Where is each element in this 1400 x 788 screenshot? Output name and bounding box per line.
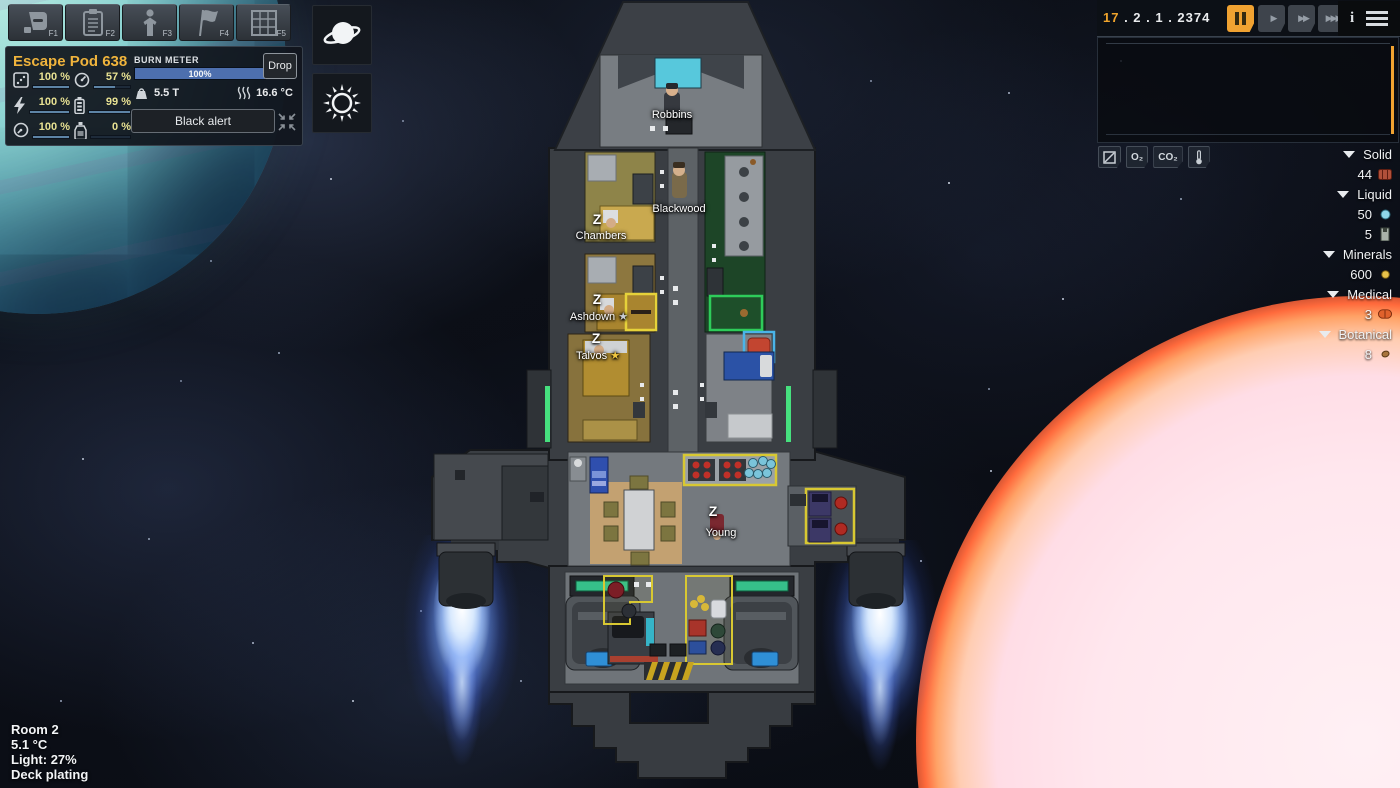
- resource-value: 50: [1358, 207, 1372, 222]
- resource-value: 44: [1358, 167, 1372, 182]
- toolbar-button-f5[interactable]: F5: [236, 4, 291, 41]
- toolbar-button-f1[interactable]: F1: [8, 4, 63, 41]
- medical-icon: [1378, 307, 1392, 321]
- canister-icon: [1378, 227, 1392, 241]
- pod-weight-temp: 5.5 T 16.6 °C: [134, 86, 293, 100]
- resource-count[interactable]: 3: [1365, 304, 1396, 324]
- room-info-line: 5.1 °C: [11, 737, 88, 752]
- collapse-panel-icon[interactable]: [278, 113, 296, 131]
- rank-star-icon: ★: [610, 350, 620, 362]
- menu-icon[interactable]: [1366, 11, 1388, 26]
- crew-label-talvos[interactable]: Talvos ★: [576, 349, 620, 362]
- stat-bar: [93, 85, 131, 89]
- crew-name: Chambers: [576, 230, 627, 242]
- resource-count[interactable]: 44: [1358, 164, 1396, 184]
- pod-stat: 99 %: [74, 97, 131, 117]
- view-buttons: [312, 5, 372, 133]
- toolbar-button-f3[interactable]: F3: [122, 4, 177, 41]
- crew-label-chambers[interactable]: Chambers: [576, 230, 627, 242]
- crew-name: Ashdown: [570, 311, 615, 323]
- airlock-light-right: [786, 386, 791, 442]
- resource-group-botanical[interactable]: Botanical: [1319, 324, 1396, 344]
- hotkey-label: F2: [106, 29, 115, 38]
- pod-stat: 0 %: [74, 122, 131, 142]
- main-toolbar: F1F2F3F4F5: [8, 4, 291, 41]
- hotkey-label: F5: [277, 29, 286, 38]
- stat-value: 0 %: [90, 122, 131, 133]
- room-info-line: Deck plating: [11, 767, 88, 782]
- pod-stat: 57 %: [74, 72, 131, 92]
- burn-meter-value: 100%: [135, 68, 265, 79]
- stat-bar: [90, 135, 131, 139]
- time-panel: 17 . 2 . 1 . 2374 ▶ ▶▶ ▶▶▶ i: [1097, 0, 1400, 37]
- resource-group-minerals[interactable]: Minerals: [1323, 244, 1396, 264]
- blueprint-icon: [251, 10, 277, 36]
- log-scrollbar[interactable]: [1391, 46, 1394, 134]
- overlay-toggles: O₂CO₂: [1098, 146, 1210, 168]
- room-info-readout: Room 25.1 °CLight: 27%Deck plating: [11, 722, 88, 782]
- resource-count[interactable]: 8: [1365, 344, 1396, 364]
- room-cockpit[interactable]: [600, 55, 762, 147]
- stat-value: 57 %: [93, 72, 131, 83]
- crew-label-blackwood[interactable]: Blackwood: [652, 203, 705, 215]
- crew-name: Blackwood: [652, 203, 705, 215]
- sun-view-button[interactable]: [312, 73, 372, 133]
- speed-gauge-icon: [74, 72, 90, 88]
- resource-group-solid[interactable]: Solid: [1343, 144, 1396, 164]
- weight-icon: [134, 86, 149, 100]
- stat-value: 99 %: [88, 97, 131, 108]
- hotkey-label: F1: [49, 29, 58, 38]
- solid-resource-icon: [1378, 167, 1392, 181]
- room-bedroom-chambers[interactable]: [585, 152, 664, 242]
- rank-star-icon: ★: [618, 311, 628, 323]
- resource-group-liquid[interactable]: Liquid: [1337, 184, 1396, 204]
- stat-bar: [88, 110, 131, 114]
- heat-icon: [237, 86, 251, 100]
- thermometer-icon[interactable]: [1188, 146, 1210, 168]
- overlay-toggle-co[interactable]: CO₂: [1153, 146, 1182, 168]
- stat-bar: [32, 135, 70, 139]
- resource-group-medical[interactable]: Medical: [1327, 284, 1396, 304]
- resource-group-label: Solid: [1363, 147, 1392, 162]
- game-viewport: RobbinsBlackwoodChambersZAshdown ★ZTalvo…: [0, 0, 1400, 788]
- drop-button[interactable]: Drop: [263, 53, 297, 79]
- room-hydroponics[interactable]: [705, 152, 765, 332]
- burn-meter-label: BURN METER: [134, 55, 199, 65]
- overlay-toggle-o[interactable]: O₂: [1126, 146, 1148, 168]
- clipboard-icon: [82, 9, 104, 36]
- chevron-down-icon: [1327, 291, 1339, 298]
- room-medical[interactable]: [700, 332, 774, 442]
- chevron-down-icon: [1323, 251, 1335, 258]
- power-icon: [13, 97, 26, 114]
- resource-group-label: Botanical: [1339, 327, 1392, 342]
- chevron-down-icon: [1343, 151, 1355, 158]
- chevron-down-icon: [1319, 331, 1331, 338]
- person-icon: [142, 9, 158, 36]
- airlock-light-left: [545, 386, 550, 442]
- liquid-resource-icon: [1378, 207, 1392, 221]
- room-engine[interactable]: [565, 572, 799, 684]
- water-icon: [74, 122, 87, 139]
- resource-value: 5: [1365, 227, 1372, 242]
- crew-label-young[interactable]: Young: [706, 527, 737, 539]
- fast-forward-button[interactable]: ▶▶: [1288, 5, 1315, 32]
- system-buttons: i: [1338, 1, 1400, 36]
- game-date: 17 . 2 . 1 . 2374: [1103, 10, 1210, 25]
- resource-value: 600: [1350, 267, 1372, 282]
- overlay-off-icon[interactable]: [1098, 146, 1121, 168]
- room-storage-right[interactable]: [788, 486, 856, 546]
- pod-stat: 100 %: [13, 122, 70, 142]
- flag-icon: [194, 9, 220, 36]
- pressure-gauge-icon: [13, 122, 29, 138]
- stat-value: 100 %: [29, 97, 70, 108]
- hotkey-label: F4: [220, 29, 229, 38]
- toolbar-button-f2[interactable]: F2: [65, 4, 120, 41]
- resource-value: 8: [1365, 347, 1372, 362]
- room-mess-hall[interactable]: [568, 452, 790, 566]
- botanical-icon: [1378, 347, 1392, 361]
- pod-temperature: 16.6 °C: [256, 87, 293, 99]
- pod-stat: 100 %: [13, 97, 70, 117]
- stat-bar: [29, 110, 70, 114]
- escape-pod-panel: Escape Pod 638 100 %57 %100 %99 %100 %0 …: [5, 46, 303, 146]
- hotkey-label: F3: [163, 29, 172, 38]
- event-log-panel[interactable]: [1097, 37, 1399, 143]
- stat-value: 100 %: [32, 72, 70, 83]
- info-button[interactable]: i: [1350, 10, 1354, 27]
- pause-button[interactable]: [1227, 5, 1254, 32]
- hull-icon: [13, 72, 29, 88]
- resource-group-label: Minerals: [1343, 247, 1392, 262]
- crew-name: Robbins: [652, 109, 692, 121]
- planet-view-button[interactable]: [312, 5, 372, 65]
- stat-value: 100 %: [32, 122, 70, 133]
- burn-meter: 100%: [134, 67, 266, 80]
- room-info-line: Light: 27%: [11, 752, 88, 767]
- play-button[interactable]: ▶: [1258, 5, 1285, 32]
- pod-title: Escape Pod 638: [13, 53, 127, 70]
- toolbar-button-f4[interactable]: F4: [179, 4, 234, 41]
- planet-icon: [322, 15, 362, 55]
- pod-stats: 100 %57 %100 %99 %100 %0 %: [13, 72, 131, 142]
- chevron-down-icon: [1337, 191, 1349, 198]
- battery-icon: [74, 97, 85, 114]
- crew-name: Young: [706, 527, 737, 539]
- crew-label-ashdown[interactable]: Ashdown ★: [570, 310, 628, 323]
- stat-bar: [32, 85, 70, 89]
- zone-marker-green: [710, 296, 762, 330]
- resource-sidebar: Solid44Liquid505Minerals600Medical3Botan…: [1319, 144, 1396, 364]
- resource-count[interactable]: 600: [1350, 264, 1396, 284]
- resource-value: 3: [1365, 307, 1372, 322]
- helmet-icon: [19, 10, 53, 36]
- crew-name: Talvos: [576, 350, 607, 362]
- resource-group-label: Liquid: [1357, 187, 1392, 202]
- mineral-icon: [1378, 267, 1392, 281]
- resource-count[interactable]: 5: [1365, 224, 1396, 244]
- resource-group-label: Medical: [1347, 287, 1392, 302]
- pod-weight: 5.5 T: [154, 87, 179, 99]
- sun-icon: [321, 82, 363, 124]
- room-info-line: Room 2: [11, 722, 88, 737]
- pod-stat: 100 %: [13, 72, 70, 92]
- crew-label-robbins[interactable]: Robbins: [652, 109, 692, 121]
- resource-count[interactable]: 50: [1358, 204, 1396, 224]
- black-alert-button[interactable]: Black alert: [131, 109, 275, 133]
